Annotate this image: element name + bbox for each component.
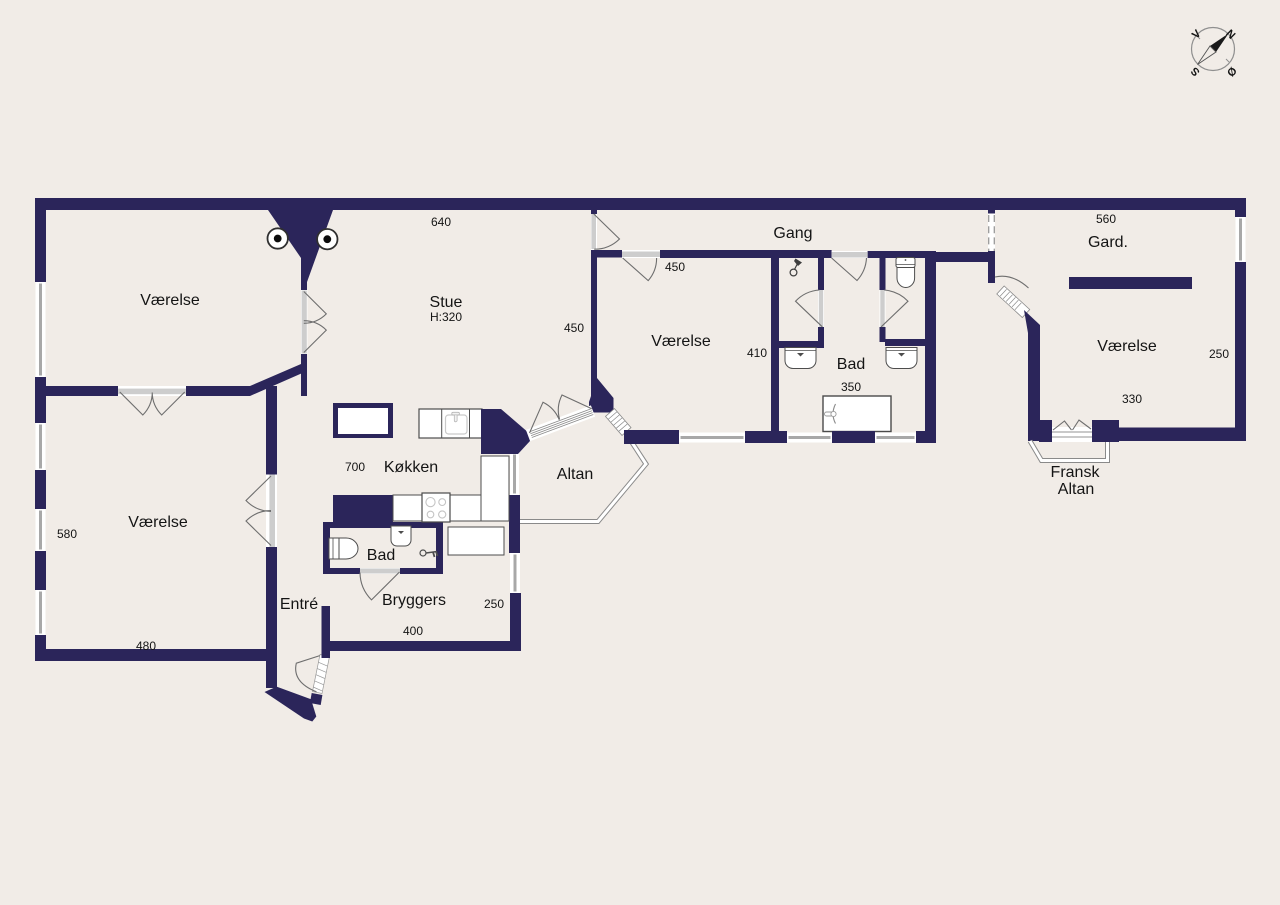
svg-text:580: 580 [57, 527, 77, 541]
svg-text:400: 400 [403, 624, 423, 638]
svg-text:350: 350 [841, 380, 861, 394]
svg-text:250: 250 [484, 597, 504, 611]
svg-text:Gang: Gang [773, 225, 812, 242]
svg-text:Værelse: Værelse [1097, 338, 1157, 355]
svg-text:450: 450 [665, 260, 685, 274]
svg-text:Bad: Bad [367, 547, 395, 564]
svg-text:Entré: Entré [280, 596, 318, 613]
svg-text:480: 480 [136, 639, 156, 653]
svg-text:330: 330 [1122, 392, 1142, 406]
svg-text:Værelse: Værelse [128, 514, 188, 531]
svg-text:450: 450 [564, 321, 584, 335]
svg-text:Køkken: Køkken [384, 459, 438, 476]
svg-text:Altan: Altan [557, 466, 593, 483]
svg-text:Fransk: Fransk [1051, 464, 1101, 481]
svg-text:H:320: H:320 [430, 310, 462, 324]
svg-text:700: 700 [345, 460, 365, 474]
svg-text:Bryggers: Bryggers [382, 592, 446, 609]
svg-text:250: 250 [1209, 347, 1229, 361]
svg-text:Stue: Stue [430, 294, 463, 311]
svg-text:Gard.: Gard. [1088, 234, 1128, 251]
svg-text:560: 560 [1096, 212, 1116, 226]
svg-text:Værelse: Værelse [140, 292, 200, 309]
svg-text:410: 410 [747, 346, 767, 360]
svg-text:Værelse: Værelse [651, 333, 711, 350]
svg-text:640: 640 [431, 215, 451, 229]
svg-text:Bad: Bad [837, 356, 865, 373]
svg-text:Altan: Altan [1058, 481, 1094, 498]
